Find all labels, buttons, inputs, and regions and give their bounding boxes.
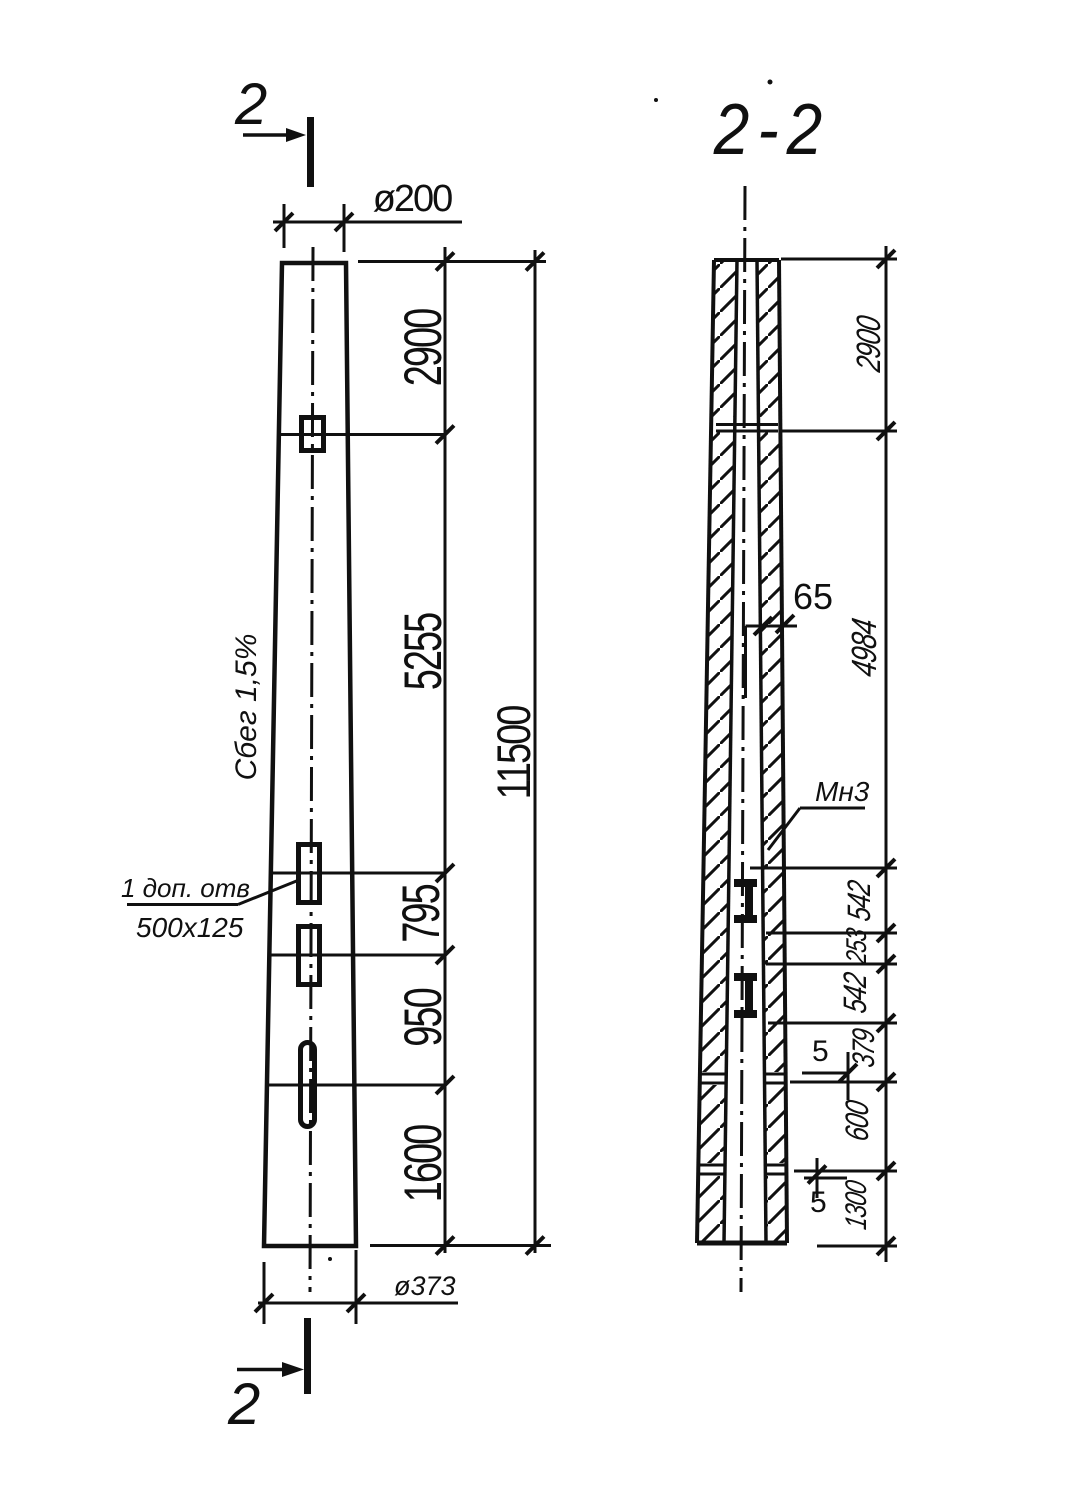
svg-text:542: 542 [842, 878, 878, 924]
svg-text:1600: 1600 [393, 1125, 453, 1202]
svg-text:542: 542 [838, 970, 874, 1016]
svg-text:795: 795 [391, 885, 451, 943]
svg-text:1300: 1300 [839, 1178, 872, 1232]
svg-text:Сбег 1,5%: Сбег 1,5% [230, 634, 263, 781]
svg-text:Мн3: Мн3 [815, 776, 870, 807]
svg-text:379: 379 [846, 1025, 880, 1069]
svg-text:253: 253 [842, 925, 873, 967]
svg-text:600: 600 [840, 1097, 876, 1144]
svg-text:ø200: ø200 [373, 178, 452, 220]
svg-text:2900: 2900 [850, 313, 888, 375]
svg-text:2: 2 [227, 1372, 260, 1437]
svg-text:4984: 4984 [844, 616, 884, 680]
svg-text:11500: 11500 [488, 705, 541, 799]
svg-text:5: 5 [812, 1035, 829, 1068]
svg-text:5255: 5255 [393, 613, 453, 690]
svg-text:1 доп. отв: 1 доп. отв [121, 873, 250, 903]
svg-text:5: 5 [810, 1186, 827, 1219]
svg-text:950: 950 [393, 989, 453, 1047]
svg-text:2900: 2900 [393, 309, 453, 386]
svg-text:2: 2 [234, 72, 267, 137]
svg-text:500x125: 500x125 [136, 912, 244, 943]
svg-text:65: 65 [793, 576, 833, 617]
svg-text:ø373: ø373 [394, 1271, 456, 1301]
svg-text:2-2: 2-2 [713, 89, 830, 169]
